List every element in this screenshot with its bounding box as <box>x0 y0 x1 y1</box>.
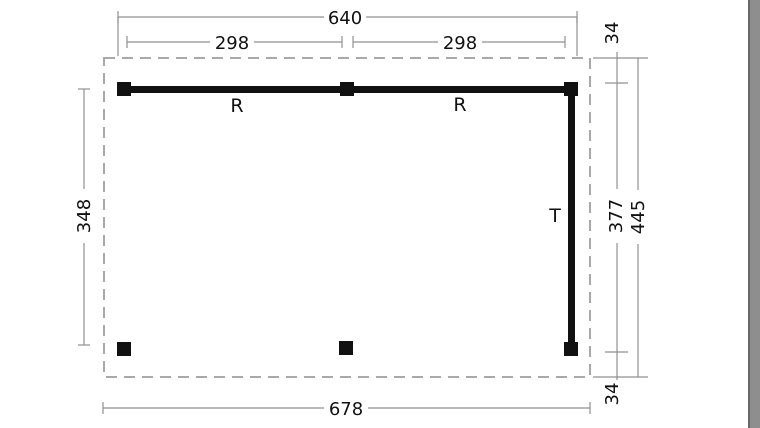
floorplan-canvas: 640 298 298 678 348 34 377 445 34 R R T <box>0 0 760 428</box>
post-bottom-right <box>564 342 578 356</box>
part-label-beam-left: R <box>230 95 243 117</box>
dim-label-right-total-depth: 445 <box>628 200 649 234</box>
window-edge-band <box>748 0 760 428</box>
post-top-right <box>564 82 578 96</box>
dim-label-top-right-segment: 298 <box>443 33 477 54</box>
dim-label-left-depth: 348 <box>74 199 95 233</box>
dim-text-backgrounds <box>74 7 649 418</box>
part-label-beam-right: R <box>453 94 466 116</box>
dimension-lines <box>78 11 648 414</box>
dim-label-bottom-total: 678 <box>329 399 363 420</box>
dim-label-top-total: 640 <box>328 8 362 29</box>
footprint-dashed-outline <box>104 58 590 377</box>
post-top-middle <box>340 82 354 96</box>
post-top-left <box>117 82 131 96</box>
dim-label-right-inner-depth: 377 <box>606 199 627 233</box>
post-bottom-left <box>117 342 131 356</box>
posts <box>117 82 578 356</box>
dim-label-right-top-offset: 34 <box>602 22 623 45</box>
part-label-beam-side: T <box>548 205 561 227</box>
beams <box>118 86 575 346</box>
dim-label-top-left-segment: 298 <box>215 33 249 54</box>
post-bottom-middle <box>339 341 353 355</box>
right-beam <box>568 86 575 346</box>
floorplan-drawing: 640 298 298 678 348 34 377 445 34 R R T <box>0 0 760 428</box>
dim-label-right-bottom-offset: 34 <box>602 383 623 406</box>
